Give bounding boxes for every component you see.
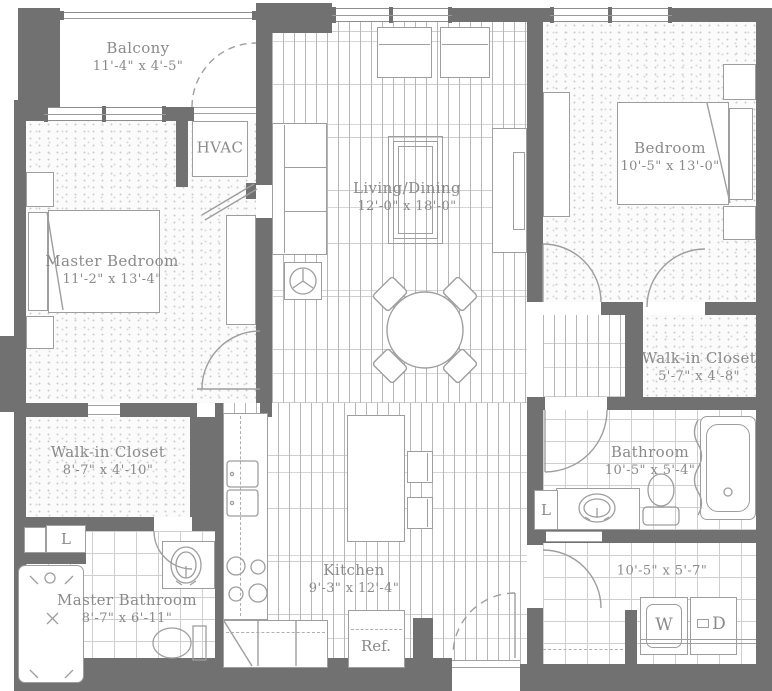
room-dims: 11'-2" x 13'-4" xyxy=(45,271,178,288)
wall xyxy=(120,403,197,417)
wall xyxy=(190,417,215,517)
floor-hallway xyxy=(543,315,625,397)
wall xyxy=(246,183,256,199)
sofa-cushion-line xyxy=(284,167,326,168)
room-dims: 11'-4" x 4'-5" xyxy=(93,58,183,75)
nightstand xyxy=(26,316,54,349)
room-name: Bedroom xyxy=(620,139,719,158)
linen-label-bath: L xyxy=(541,501,551,519)
kitchen-counter xyxy=(223,413,268,620)
sofa-cushion-line xyxy=(284,211,326,212)
armchair xyxy=(440,27,490,78)
wall xyxy=(527,397,545,410)
kitchen-counter-corner xyxy=(223,620,328,668)
entry-door-threshold xyxy=(452,660,520,668)
room-label-laundry: 10'-5" x 5'-7" xyxy=(617,563,707,580)
wall xyxy=(256,3,332,33)
wall xyxy=(625,610,637,666)
dryer-control xyxy=(697,619,709,628)
room-dims: 8'-7" x 4'-10" xyxy=(51,462,165,479)
room-name: Bathroom xyxy=(605,443,695,462)
room-name: Walk-in Closet xyxy=(642,349,756,368)
room-label-bathroom: Bathroom 10'-5" x 5'-4" xyxy=(605,443,695,479)
dryer-label: D xyxy=(712,614,726,634)
bed-pillows xyxy=(729,108,753,200)
stool-back-line xyxy=(427,453,428,481)
wall xyxy=(607,397,756,410)
window xyxy=(332,8,452,22)
room-name: Master Bedroom xyxy=(45,252,178,271)
room-dims: 10'-5" x 13'-0" xyxy=(620,158,719,175)
wall xyxy=(14,552,86,564)
kitchen-island xyxy=(347,415,405,542)
dresser xyxy=(543,92,570,217)
room-name: Walk-in Closet xyxy=(51,443,165,462)
window-jamb xyxy=(332,7,336,23)
cased-opening xyxy=(546,531,602,542)
wall xyxy=(705,302,756,315)
wall xyxy=(215,403,223,668)
armchair xyxy=(377,27,432,78)
wall xyxy=(192,517,215,531)
wall xyxy=(176,113,188,187)
tv xyxy=(513,152,525,230)
refrigerator-label: Ref. xyxy=(361,637,391,655)
wall xyxy=(14,403,88,417)
room-label-bedroom: Bedroom 10'-5" x 13'-0" xyxy=(620,139,719,175)
room-label-kitchen: Kitchen 9'-3" x 12'-4" xyxy=(309,561,399,597)
wall xyxy=(527,20,543,302)
window-jamb xyxy=(550,7,554,23)
side-table xyxy=(284,262,322,300)
balcony-railing xyxy=(60,12,256,19)
wall xyxy=(256,33,272,185)
bathroom-vanity xyxy=(556,488,640,530)
wall xyxy=(413,618,433,658)
floor-plan: Balcony 11'-4" x 4'-5" HVAC Living/Dinin… xyxy=(0,0,772,691)
stool-back-line xyxy=(427,499,428,527)
wall xyxy=(14,107,44,121)
appliance-front-line xyxy=(640,643,756,644)
closet-rod-dashed xyxy=(543,649,623,650)
wall xyxy=(756,8,772,682)
nightstand xyxy=(26,172,54,207)
wall xyxy=(601,302,643,315)
window-mullion xyxy=(608,7,612,23)
wall xyxy=(520,664,772,691)
sofa xyxy=(272,123,327,255)
cabinet xyxy=(24,527,46,553)
railing-post xyxy=(252,11,256,20)
upper-cabinet-dashed-line xyxy=(226,632,325,633)
master-vanity xyxy=(162,541,215,589)
window-jamb xyxy=(44,106,48,122)
appliance-front-line xyxy=(640,639,756,640)
room-label-master-bathroom: Master Bathroom 8'-7" x 6'-11" xyxy=(57,591,197,627)
window-jamb xyxy=(162,106,166,122)
room-label-hvac: HVAC xyxy=(197,139,244,158)
railing-post xyxy=(60,11,64,20)
room-dims: 12'-0" x 18'-0" xyxy=(353,198,461,215)
wall xyxy=(18,8,60,108)
wall xyxy=(527,608,543,668)
window-jamb xyxy=(448,7,452,23)
room-dims: 5'-7" x 4'-8" xyxy=(642,368,756,385)
wall xyxy=(256,218,272,403)
room-label-walk-in-closet-master: Walk-in Closet 8'-7" x 4'-10" xyxy=(51,443,165,479)
window xyxy=(44,107,166,121)
room-dims: 10'-5" x 5'-4" xyxy=(605,462,695,479)
wall xyxy=(0,336,14,412)
room-dims: 8'-7" x 6'-11" xyxy=(57,610,197,627)
armchair-cushion-line xyxy=(442,44,488,45)
wall xyxy=(625,315,643,397)
dresser xyxy=(226,215,256,325)
room-dims: 10'-5" x 5'-7" xyxy=(617,563,707,580)
window-mullion xyxy=(389,7,393,23)
washer-label: W xyxy=(655,615,672,635)
cased-opening xyxy=(88,405,120,415)
room-name: Living/Dining xyxy=(353,179,461,198)
room-label-master-bedroom: Master Bedroom 11'-2" x 13'-4" xyxy=(45,252,178,288)
room-name: HVAC xyxy=(197,139,244,158)
nightstand xyxy=(723,64,756,100)
refrigerator-dashed-line xyxy=(351,629,402,630)
balcony-door-threshold xyxy=(194,107,256,114)
nightstand xyxy=(723,206,756,240)
armchair-cushion-line xyxy=(379,44,430,45)
bathtub-inner xyxy=(706,424,750,512)
window xyxy=(550,8,672,22)
room-name: Balcony xyxy=(93,39,183,58)
balcony-door-arc xyxy=(192,43,256,107)
room-name: Master Bathroom xyxy=(57,591,197,610)
linen-label-master: L xyxy=(61,530,71,548)
room-dims: 9'-3" x 12'-4" xyxy=(309,580,399,597)
upper-cabinet-dashed-line xyxy=(240,416,241,616)
room-name: Kitchen xyxy=(309,561,399,580)
room-label-living-dining: Living/Dining 12'-0" x 18'-0" xyxy=(353,179,461,215)
sofa-back-line xyxy=(284,125,285,253)
bar-stool xyxy=(407,497,433,529)
window-jamb xyxy=(668,7,672,23)
room-label-walk-in-closet-hall: Walk-in Closet 5'-7" x 4'-8" xyxy=(642,349,756,385)
bar-stool xyxy=(407,451,433,483)
window-mullion xyxy=(102,106,106,122)
room-label-balcony: Balcony 11'-4" x 4'-5" xyxy=(93,39,183,75)
